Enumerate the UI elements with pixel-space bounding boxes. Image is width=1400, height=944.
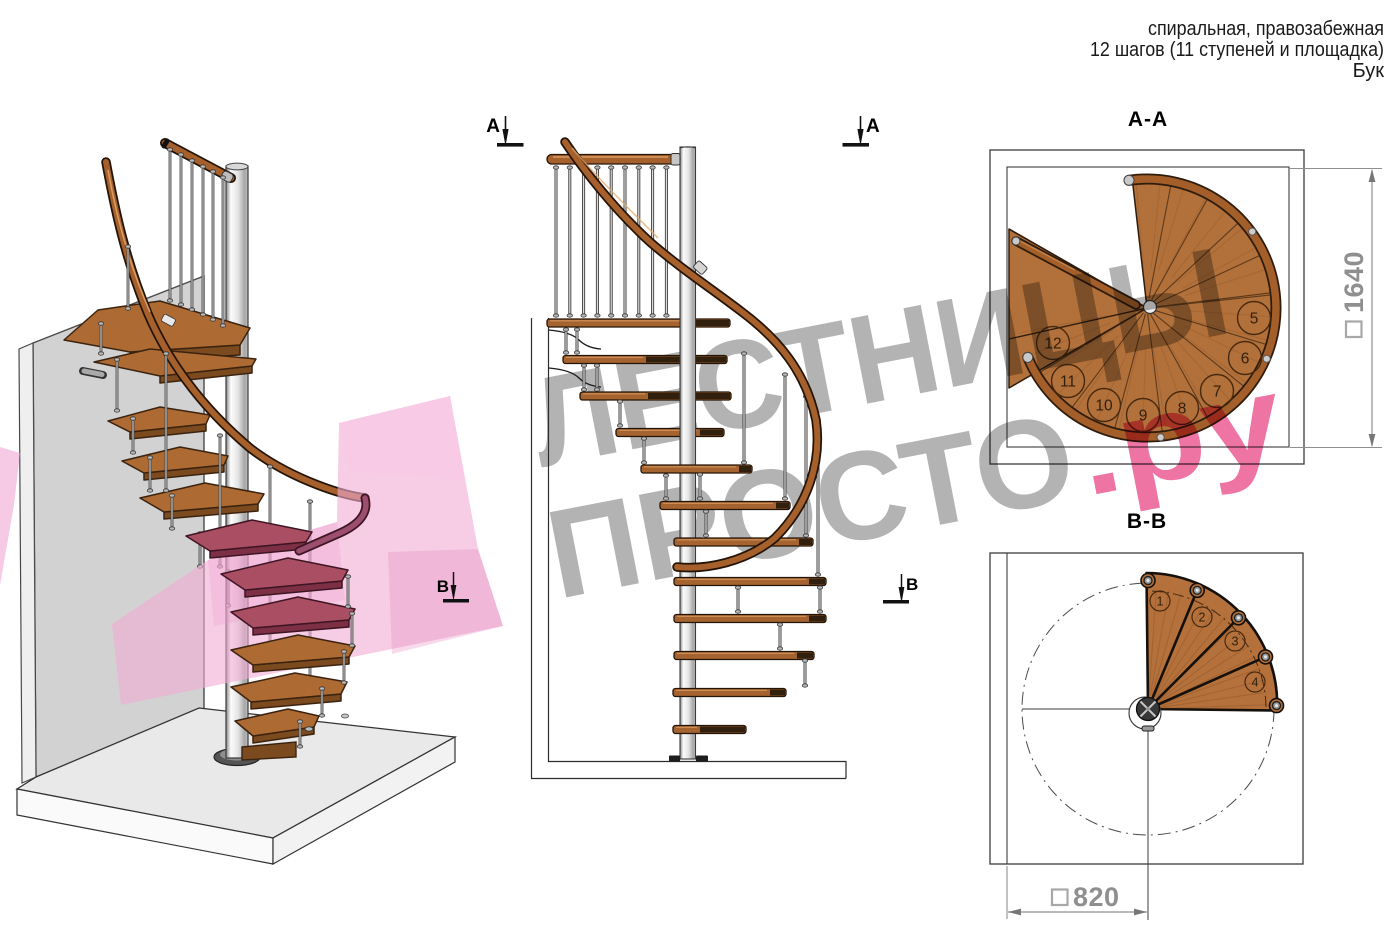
svg-text:B: B	[437, 577, 449, 596]
svg-text:5: 5	[1250, 311, 1259, 328]
svg-text:12 шагов (11 ступеней и площад: 12 шагов (11 ступеней и площадка)	[1090, 39, 1384, 61]
svg-text:А-А: А-А	[1128, 108, 1168, 131]
svg-text:820: 820	[1073, 882, 1120, 912]
svg-text:3: 3	[1232, 635, 1239, 649]
svg-text:A: A	[866, 116, 880, 137]
svg-text:A: A	[486, 116, 500, 137]
svg-text:4: 4	[1252, 676, 1259, 690]
svg-text:спиральная, правозабежная: спиральная, правозабежная	[1148, 18, 1384, 40]
svg-text:B: B	[906, 575, 918, 594]
svg-text:2: 2	[1199, 611, 1206, 625]
svg-text:1640: 1640	[1339, 251, 1369, 313]
svg-text:Бук: Бук	[1353, 60, 1385, 82]
svg-text:1: 1	[1157, 595, 1164, 609]
